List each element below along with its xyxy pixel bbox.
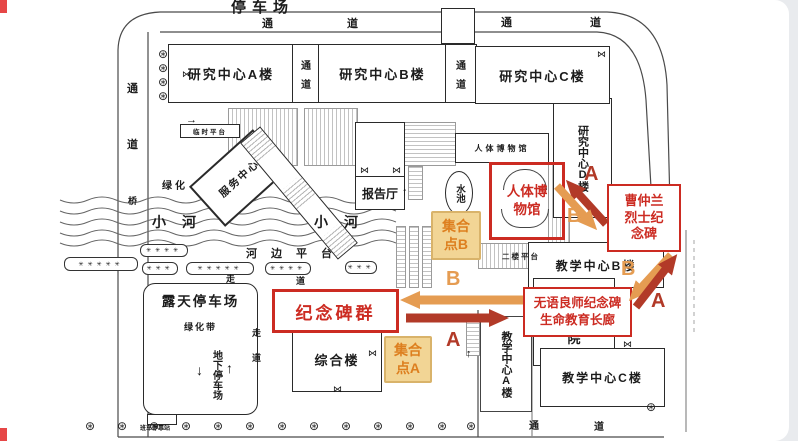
route-a-letter: A (651, 291, 665, 311)
route-a-letter: A (446, 330, 460, 350)
route-arrows (0, 0, 789, 441)
map-card: 研究中心A楼 通 道 研究中心B楼 通 道 研究中心C楼 研究中心D楼 人体博物… (0, 0, 789, 441)
campus-map: 研究中心A楼 通 道 研究中心B楼 通 道 研究中心C楼 研究中心D楼 人体博物… (0, 0, 789, 441)
route-a-letter: A (584, 164, 598, 184)
left-edge-accent-bottom (0, 428, 7, 441)
route-b-letter: B (567, 206, 581, 226)
route-b-letter: B (621, 259, 635, 279)
route-b-letter: B (446, 269, 460, 289)
left-edge-accent-top (0, 0, 7, 13)
